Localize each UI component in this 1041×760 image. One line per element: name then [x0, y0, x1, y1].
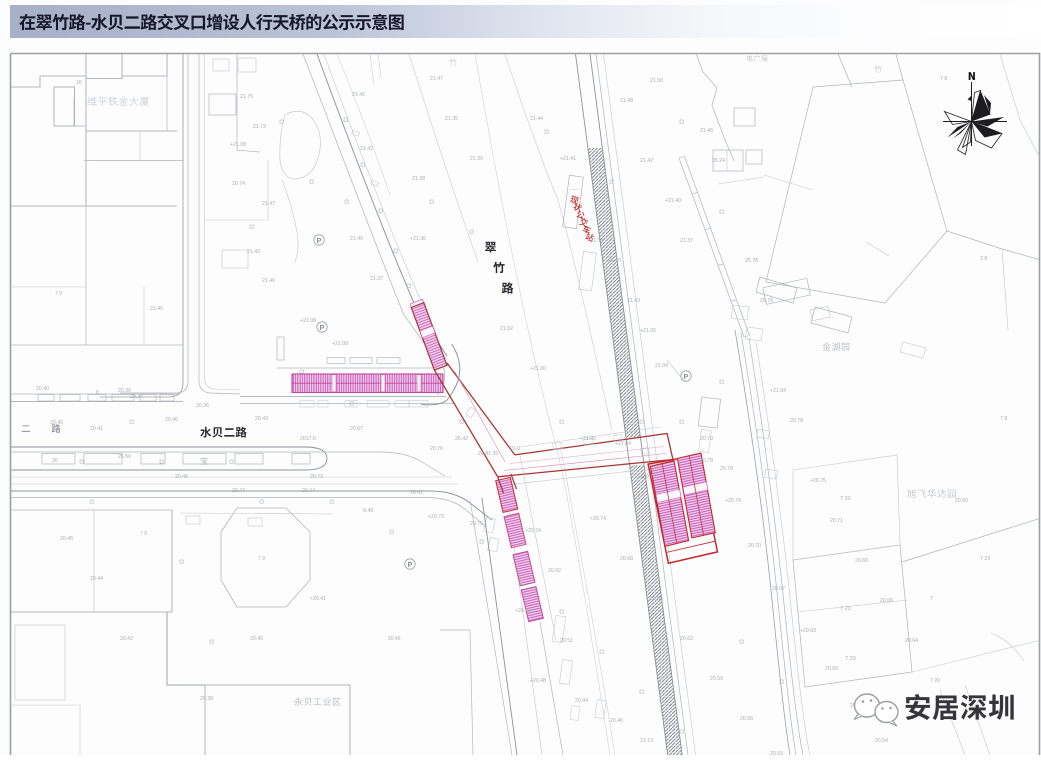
svg-text:2 8: 2 8 [980, 256, 987, 262]
svg-text:26.50: 26.50 [118, 454, 131, 460]
svg-text:9.48: 9.48 [363, 508, 373, 514]
svg-text:7 23: 7 23 [840, 606, 851, 612]
svg-text:20.47: 20.47 [232, 488, 245, 494]
svg-text:20.73: 20.73 [310, 474, 323, 480]
svg-text:+20.48: +20.48 [530, 678, 546, 684]
svg-text:20.76: 20.76 [430, 446, 443, 452]
svg-text:21.40: 21.40 [262, 278, 275, 284]
svg-text:20.46: 20.46 [388, 636, 401, 642]
svg-text:+21.08: +21.08 [300, 318, 316, 324]
svg-text:20.75: 20.75 [470, 521, 483, 527]
svg-text:20.54: 20.54 [875, 738, 888, 744]
svg-text:20.60: 20.60 [825, 666, 838, 672]
svg-text:21.44: 21.44 [530, 116, 543, 122]
svg-text:21.45: 21.45 [150, 306, 163, 312]
svg-text:20.59: 20.59 [710, 676, 723, 682]
svg-text:26.42: 26.42 [455, 436, 468, 442]
svg-text:20.78: 20.78 [700, 458, 713, 464]
svg-text:7 20: 7 20 [845, 656, 856, 662]
svg-text:20.78: 20.78 [790, 418, 803, 424]
svg-text:+21.40: +21.40 [665, 198, 681, 204]
svg-text:21.37: 21.37 [680, 238, 693, 244]
svg-text:7 8: 7 8 [1000, 416, 1007, 422]
svg-text:+20.63: +20.63 [800, 628, 816, 634]
svg-text:21.43: 21.43 [627, 298, 640, 304]
svg-text:+20.74: +20.74 [725, 498, 741, 504]
svg-text:+21.00: +21.00 [530, 366, 546, 372]
svg-text:21.47: 21.47 [430, 76, 443, 82]
svg-text:24.81 35: 24.81 35 [478, 451, 498, 457]
svg-text:16: 16 [76, 80, 82, 86]
svg-text:21.73: 21.73 [253, 124, 266, 130]
svg-text:P: P [316, 236, 321, 245]
svg-text:7 20: 7 20 [840, 496, 851, 502]
svg-text:+21.41: +21.41 [560, 156, 576, 162]
svg-text:20.62: 20.62 [680, 636, 693, 642]
svg-text:+21.08: +21.08 [332, 341, 348, 347]
svg-text:21.02: 21.02 [500, 326, 513, 332]
svg-text:20.66: 20.66 [880, 598, 893, 604]
svg-text:20.40: 20.40 [50, 420, 63, 426]
svg-text:P: P [407, 560, 412, 569]
svg-text:20.46: 20.46 [165, 417, 178, 423]
svg-text:+20.76: +20.76 [640, 474, 656, 480]
svg-text:20.44: 20.44 [302, 488, 315, 494]
svg-text:+20.41: +20.41 [310, 596, 326, 602]
svg-text:7 23: 7 23 [980, 556, 990, 562]
svg-text:26.42: 26.42 [410, 490, 423, 496]
svg-text:21.42: 21.42 [640, 158, 653, 164]
svg-text:20.72: 20.72 [660, 516, 673, 522]
svg-text:+20.75: +20.75 [810, 478, 826, 484]
svg-text:+20.73: +20.73 [428, 514, 444, 520]
svg-text:21.35: 21.35 [445, 116, 458, 122]
svg-text:7 9: 7 9 [258, 556, 265, 562]
svg-text:20.64: 20.64 [905, 638, 918, 644]
svg-text:21.40: 21.40 [350, 236, 363, 242]
svg-text:20.46: 20.46 [175, 474, 188, 480]
svg-text:20.52: 20.52 [548, 568, 561, 574]
svg-text:21.48: 21.48 [620, 98, 633, 104]
svg-text:20.38: 20.38 [200, 696, 213, 702]
svg-text:20.67: 20.67 [772, 586, 785, 592]
svg-text:20.44: 20.44 [575, 698, 588, 704]
svg-text:20.36: 20.36 [196, 403, 209, 409]
svg-text:7 20: 7 20 [930, 678, 940, 684]
svg-text:20.65: 20.65 [650, 596, 663, 602]
svg-text:20.43: 20.43 [255, 416, 268, 422]
svg-text:21.38: 21.38 [412, 176, 425, 182]
svg-text:21.45: 21.45 [352, 92, 365, 98]
svg-text:+21.05: +21.05 [640, 328, 656, 334]
svg-text:21.04: 21.04 [655, 363, 668, 369]
svg-text:20.51: 20.51 [560, 638, 573, 644]
svg-text:21.43: 21.43 [247, 249, 260, 255]
svg-text:7 8: 7 8 [940, 76, 947, 82]
svg-text:+20.49: +20.49 [515, 608, 531, 614]
svg-text:21.47: 21.47 [262, 201, 275, 207]
svg-text:20.69: 20.69 [855, 558, 868, 564]
svg-text:20.70: 20.70 [748, 543, 761, 549]
svg-text:20.40: 20.40 [250, 636, 263, 642]
svg-text:26.78: 26.78 [760, 298, 773, 304]
svg-text:2017.6: 2017.6 [300, 436, 316, 442]
svg-text:21.38: 21.38 [590, 238, 603, 244]
svg-text:20.79: 20.79 [700, 436, 713, 442]
svg-text:8: 8 [96, 390, 99, 396]
svg-text:21.30: 21.30 [470, 156, 483, 162]
svg-text:21.37: 21.37 [370, 276, 383, 282]
svg-text:P: P [319, 323, 324, 332]
svg-text:+21.04: +21.04 [615, 441, 631, 447]
svg-text:+20.74: +20.74 [590, 516, 606, 522]
svg-text:+21.36: +21.36 [410, 236, 426, 242]
svg-text:+21.04: +21.04 [770, 388, 786, 394]
svg-text:20.67: 20.67 [350, 426, 363, 432]
svg-text:+21.08: +21.08 [230, 142, 246, 148]
svg-text:P: P [683, 372, 688, 381]
svg-text:21.0: 21.0 [510, 446, 520, 452]
svg-text:7: 7 [930, 596, 933, 602]
svg-text:21.42: 21.42 [360, 146, 373, 152]
svg-text:20.37: 20.37 [130, 394, 143, 400]
svg-text:+20.74: +20.74 [525, 528, 541, 534]
svg-text:35.24: 35.24 [712, 158, 725, 164]
svg-text:20.46: 20.46 [610, 718, 623, 724]
svg-text:20.41: 20.41 [90, 426, 103, 432]
svg-text:20.42: 20.42 [120, 636, 133, 642]
svg-text:7 9: 7 9 [55, 291, 62, 297]
svg-text:21.50: 21.50 [650, 78, 663, 84]
svg-text:20.56: 20.56 [740, 716, 753, 722]
svg-text:20.46: 20.46 [60, 536, 73, 542]
svg-text:25.78: 25.78 [745, 258, 758, 264]
svg-text:20.40: 20.40 [36, 386, 49, 392]
svg-text:20.74: 20.74 [232, 181, 245, 187]
svg-text:20.68: 20.68 [620, 556, 633, 562]
svg-text:+21.05: +21.05 [580, 436, 596, 442]
svg-text:21.75: 21.75 [240, 94, 253, 100]
svg-text:20.71: 20.71 [830, 518, 843, 524]
svg-text:7 9: 7 9 [140, 531, 147, 537]
svg-text:26: 26 [52, 458, 58, 464]
svg-text:20.53: 20.53 [770, 751, 783, 755]
svg-text:21.13: 21.13 [640, 738, 653, 744]
svg-text:21.40: 21.40 [608, 258, 621, 264]
svg-text:20.44: 20.44 [90, 576, 103, 582]
svg-text:20.60: 20.60 [955, 498, 968, 504]
svg-text:21.46: 21.46 [700, 128, 713, 134]
svg-text:25.78: 25.78 [720, 466, 733, 472]
